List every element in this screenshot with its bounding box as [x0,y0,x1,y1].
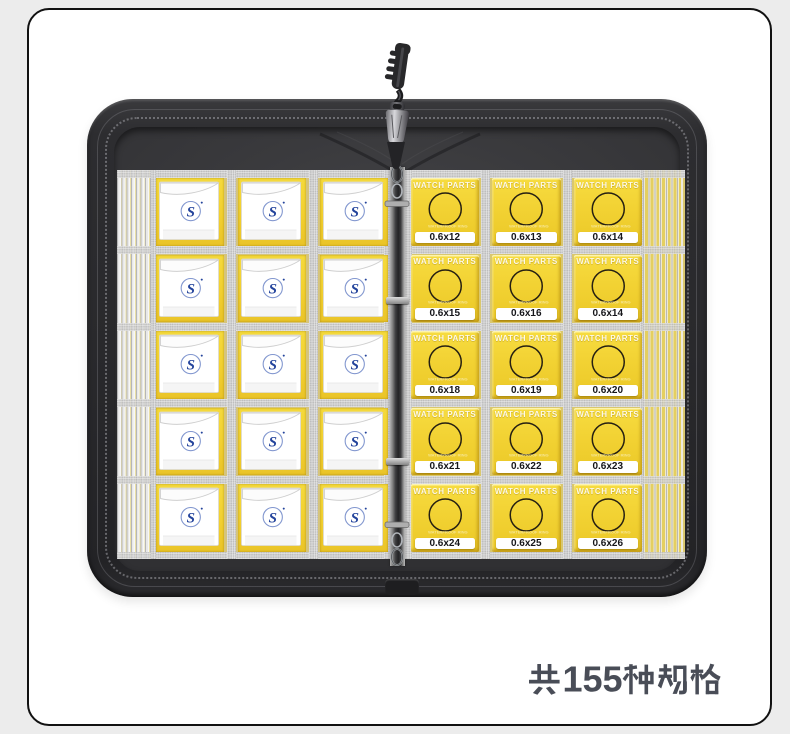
svg-text:S: S [268,434,276,450]
svg-text:S: S [186,434,194,450]
svg-text:S: S [350,204,358,220]
svg-text:S: S [186,204,194,220]
svg-text:S: S [186,281,194,297]
svg-text:S: S [350,510,358,526]
svg-text:S: S [350,434,358,450]
svg-text:S: S [268,281,276,297]
svg-text:S: S [186,510,194,526]
svg-text:S: S [268,510,276,526]
svg-text:S: S [186,357,194,373]
svg-text:S: S [350,281,358,297]
svg-text:155: 155 [563,660,623,699]
svg-text:S: S [268,204,276,220]
svg-text:S: S [350,357,358,373]
svg-text:S: S [268,357,276,373]
